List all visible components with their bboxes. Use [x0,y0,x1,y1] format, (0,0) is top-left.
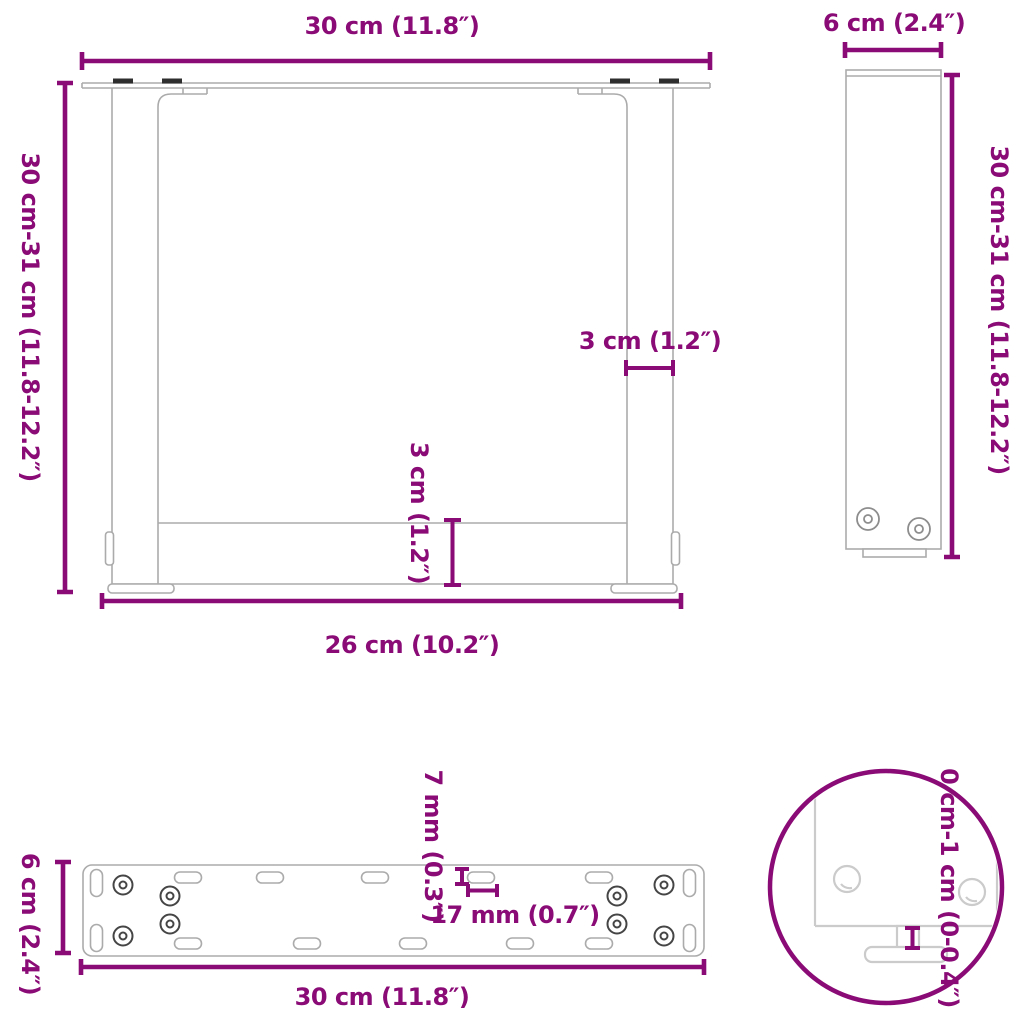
plate-vertical-slot [91,925,103,952]
plate-horizontal-slot [586,938,613,949]
plate-horizontal-slot [586,872,613,883]
plate-vertical-slot [684,870,696,897]
front-left-foot [108,584,174,593]
front-leg-thickness-label: 3 cm (1.2″) [579,329,721,353]
plate-horizontal-slot [362,872,389,883]
plate-depth-label: 6 cm (2.4″) [18,853,42,995]
detail-adjust-range-label: 0 cm-1 cm (0-0.4″) [937,768,961,1008]
side-foot [863,549,926,557]
plate-horizontal-slot [468,872,495,883]
side-body [846,70,941,549]
dimension-diagram: 30 cm (11.8″) 30 cm-31 cm (11.8-12.2″) 3… [0,0,1024,1024]
front-right-clip [672,532,680,565]
slot-width-label: 7 mm (0.3″) [421,769,445,922]
plate-horizontal-slot [175,872,202,883]
side-depth-dimension-line [845,42,941,58]
front-height-dimension-line [57,83,73,592]
front-crossbar [112,523,673,584]
slot-length-bracket [468,884,497,897]
plate-horizontal-slot [294,938,321,949]
slot-length-label: 17 mm (0.7″) [430,903,599,927]
front-leg-thickness-bracket [626,360,673,376]
side-screw-hole [857,508,879,530]
front-left-clip [106,532,114,565]
front-width-label: 30 cm (11.8″) [305,14,480,38]
side-screw-hole [915,525,923,533]
side-screw-hole [908,518,930,540]
plate-vertical-slot [91,870,103,897]
side-screw-hole [864,515,872,523]
front-crossbar-height-bracket [444,520,461,585]
detail-screw-hole-notch [966,897,977,901]
front-left-leg [112,88,207,584]
side-view-drawing [845,42,960,557]
side-depth-label: 6 cm (2.4″) [823,11,965,35]
front-top-plate [82,83,710,88]
plate-slot-mark [659,79,679,84]
plate-depth-dimension-line [55,862,71,953]
mounting-plate-outline [83,865,704,956]
side-height-dimension-line [944,75,960,557]
plate-horizontal-slot [175,938,202,949]
plate-width-dimension-line [81,959,704,975]
top-view-drawing [55,862,704,975]
detail-leg-body [815,770,1004,926]
plate-slot-mark [113,79,133,84]
detail-circle [770,771,1002,1003]
plate-horizontal-slot [257,872,284,883]
plate-vertical-slot [684,925,696,952]
plate-slot-mark [162,79,182,84]
side-height-label: 30 cm-31 cm (11.8-12.2″) [987,145,1011,474]
plate-width-label: 30 cm (11.8″) [295,985,470,1009]
plate-slot-mark [610,79,630,84]
detail-view-drawing [770,770,1004,1003]
plate-horizontal-slot [507,938,534,949]
front-crossbar-height-label: 3 cm (1.2″) [407,442,431,584]
plate-horizontal-slot [400,938,427,949]
detail-screw-hole-notch [841,884,852,888]
front-right-foot [611,584,677,593]
front-top-dimension-line [82,52,710,70]
front-inner-width-label: 26 cm (10.2″) [325,633,500,657]
front-inner-width-dimension-line [102,593,681,609]
front-height-label: 30 cm-31 cm (11.8-12.2″) [18,152,42,481]
technical-drawing [0,0,1024,1024]
